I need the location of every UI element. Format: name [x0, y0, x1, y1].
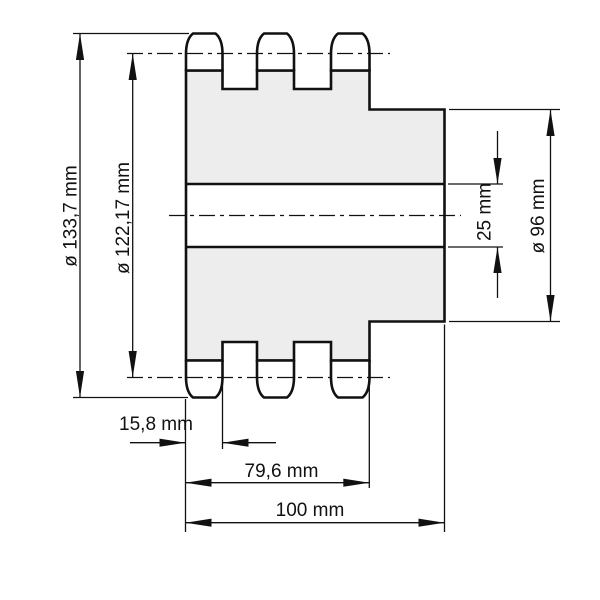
dim-arrow-down: [76, 371, 84, 398]
dim-bore-diameter: 25 mm: [448, 131, 503, 298]
dim-label-overall-width: 100 mm: [276, 500, 345, 521]
dim-arrow-down: [129, 351, 137, 378]
dim-label-teeth-overall-width: 79,6 mm: [245, 461, 319, 482]
dim-arrow-up: [493, 247, 501, 273]
dim-arrow-left: [186, 479, 212, 487]
dim-arrow-up: [76, 34, 84, 61]
dim-arrow-right: [160, 439, 186, 447]
dim-arrow-down: [493, 158, 501, 184]
dim-arrow-right: [419, 519, 445, 527]
tooth-top-1: [186, 34, 223, 71]
dim-pitch-diameter: ø 122,17 mm: [113, 54, 137, 378]
dim-label-single-row-width: 15,8 mm: [119, 414, 193, 435]
tooth-bottom-1: [186, 361, 223, 398]
dim-arrow-up: [546, 110, 554, 137]
dim-overall-width: 100 mm: [186, 325, 445, 533]
dim-arrow-left: [186, 519, 212, 527]
dim-label-bore-diameter: 25 mm: [475, 183, 496, 241]
dim-arrow-left: [223, 439, 249, 447]
dim-label-hub-diameter: ø 96 mm: [528, 179, 549, 254]
sprocket-drawing: ø 133,7 mm ø 122,17 mm ø 96 mm 25 mm 15,…: [0, 0, 600, 600]
dim-label-tip-diameter: ø 133,7 mm: [61, 165, 82, 266]
dim-arrow-down: [546, 295, 554, 322]
dim-hub-diameter: ø 96 mm: [449, 110, 560, 322]
tooth-top-2: [257, 34, 294, 71]
tooth-bottom-3: [331, 361, 370, 398]
tooth-top-3: [331, 34, 370, 71]
drawing-canvas: ø 133,7 mm ø 122,17 mm ø 96 mm 25 mm 15,…: [0, 0, 600, 600]
tooth-bottom-2: [257, 361, 294, 398]
dim-label-pitch-diameter: ø 122,17 mm: [113, 162, 134, 274]
dim-arrow-right: [343, 479, 369, 487]
dim-arrow-up: [129, 54, 137, 81]
